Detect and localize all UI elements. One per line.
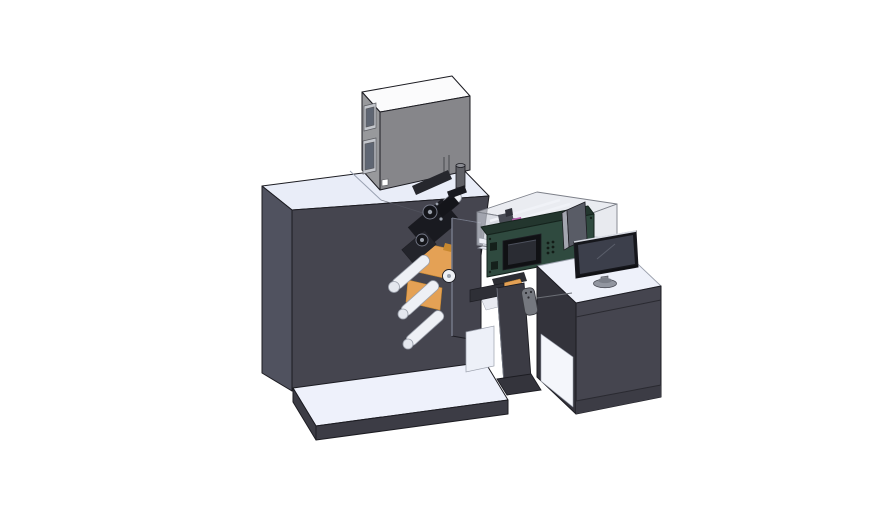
screw [590, 217, 592, 219]
screw [489, 271, 491, 273]
plate-roller-pin [447, 274, 451, 278]
button-dot [552, 251, 555, 254]
fob-dot [527, 296, 529, 298]
pedestal-shelf [466, 326, 494, 372]
button-dot [552, 241, 555, 244]
feeder-box [362, 76, 470, 190]
head-dot [436, 203, 439, 206]
roller-cap [398, 309, 408, 319]
control-inset-lower [491, 261, 498, 270]
roller-cap [403, 339, 413, 349]
feeder-box-window-upper [364, 103, 376, 131]
top-knob [456, 164, 465, 189]
knob-cap [456, 164, 465, 168]
monitor-base-top [598, 278, 612, 283]
fob-dot [530, 291, 532, 293]
feeder-box-label [382, 179, 388, 186]
head-bearing-large-pin [428, 210, 432, 214]
feeder-box-window-lower [363, 138, 376, 174]
window-pane [365, 142, 374, 170]
button-dot [547, 252, 550, 255]
window-pane [366, 107, 374, 127]
machine-left-face [262, 186, 292, 391]
machine-line-render [0, 0, 888, 522]
knob-body [456, 165, 465, 188]
fob-dot [525, 292, 527, 294]
head-bearing-small-pin [420, 238, 424, 242]
cad-render-canvas [0, 0, 888, 522]
head-dot [439, 217, 442, 220]
control-inset-upper [490, 242, 497, 251]
button-dot [552, 246, 555, 249]
button-dot [547, 242, 550, 245]
button-dot [547, 247, 550, 250]
screw [489, 238, 491, 240]
roller-cap [389, 282, 400, 293]
